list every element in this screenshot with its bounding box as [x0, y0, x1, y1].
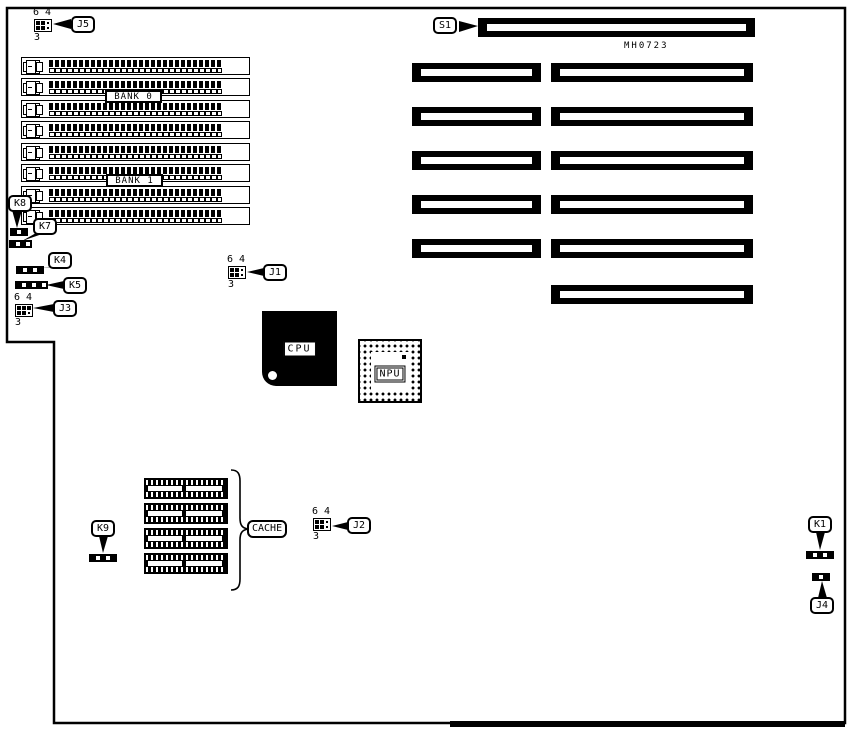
expansion-slot-long — [551, 285, 753, 304]
callout-k7: K7 — [33, 218, 57, 235]
connector-k7 — [9, 240, 32, 248]
callout-tail-s1 — [459, 21, 478, 32]
cpu-chip: CPU — [262, 311, 337, 386]
callout-k4: K4 — [48, 252, 72, 269]
s1-slot — [478, 18, 755, 37]
slot-opening — [421, 201, 532, 208]
callout-j3: J3 — [53, 300, 77, 317]
expansion-slot-short — [412, 151, 541, 170]
j2-pin4-label: 4 — [324, 507, 330, 517]
npu-label: NPU — [376, 368, 403, 381]
callout-s1-label: S1 — [439, 21, 451, 31]
callout-k1-label: K1 — [814, 520, 826, 530]
board-part-number: MH0723 — [624, 41, 669, 51]
j2-pin6-label: 6 — [312, 507, 318, 517]
callout-k9: K9 — [91, 520, 115, 537]
callout-tail-k5 — [46, 281, 64, 289]
callout-tail-k9 — [99, 536, 108, 553]
cache-label: CACHE — [247, 520, 287, 538]
callout-j4: J4 — [810, 597, 834, 614]
j1-pin6-label: 6 — [227, 255, 233, 265]
cache-label-text: CACHE — [252, 524, 282, 534]
expansion-slot-long — [551, 63, 753, 82]
cache-brace — [231, 470, 248, 590]
jumper-j2: 6 4 3 — [312, 507, 338, 545]
callout-s1: S1 — [433, 17, 457, 34]
connector-k5 — [15, 281, 48, 289]
callout-j5-label: J5 — [77, 20, 89, 30]
callout-k7-label: K7 — [39, 222, 51, 232]
bank0-text: BANK 0 — [114, 92, 153, 102]
j5-pin3-label: 3 — [34, 33, 40, 43]
callout-j1-label: J1 — [269, 268, 281, 278]
jumper-j1: 6 4 3 — [227, 255, 253, 293]
callout-k5: K5 — [63, 277, 87, 294]
slot-opening — [560, 201, 744, 208]
slot-opening — [560, 69, 744, 76]
bank1-text: BANK 1 — [115, 176, 154, 186]
j5-pin4-label: 4 — [45, 8, 51, 18]
jumper-j3: 6 4 3 — [14, 293, 40, 331]
npu-pin1-dot — [402, 355, 406, 359]
j2-pin-grid — [313, 518, 331, 531]
callout-j2-label: J2 — [353, 521, 365, 531]
simm-slot-7 — [21, 186, 250, 204]
expansion-slot-long — [551, 195, 753, 214]
connector-k9 — [89, 554, 117, 562]
connector-k8 — [10, 228, 28, 236]
callout-j1: J1 — [263, 264, 287, 281]
expansion-slot-short — [412, 63, 541, 82]
callout-k8: K8 — [8, 195, 32, 212]
cpu-pin1-dot — [268, 371, 277, 380]
expansion-slot-short — [412, 239, 541, 258]
slot-opening — [421, 113, 532, 120]
callout-tail-j4 — [818, 581, 827, 598]
expansion-slot-long — [551, 151, 753, 170]
callout-j4-label: J4 — [816, 601, 828, 611]
cache-chip-row — [144, 478, 228, 499]
cpu-label: CPU — [283, 341, 315, 356]
callout-k5-label: K5 — [69, 281, 81, 291]
bank0-label: BANK 0 — [105, 90, 162, 103]
expansion-slot-short — [412, 107, 541, 126]
slot-opening — [560, 157, 744, 164]
j1-pin4-label: 4 — [239, 255, 245, 265]
j5-pin6-label: 6 — [33, 8, 39, 18]
j3-pin4-label: 4 — [26, 293, 32, 303]
j1-pin3-label: 3 — [228, 280, 234, 290]
j3-pin3-label: 3 — [15, 318, 21, 328]
cache-chip-row — [144, 553, 228, 574]
callout-j3-label: J3 — [59, 304, 71, 314]
j3-pin-grid — [15, 304, 33, 317]
callout-k1: K1 — [808, 516, 832, 533]
cache-chip-row — [144, 528, 228, 549]
jumper-j5: 6 4 3 — [33, 8, 59, 46]
callout-tail-k1 — [816, 532, 825, 550]
bank1-label: BANK 1 — [106, 174, 163, 187]
slot-opening — [560, 113, 744, 120]
expansion-slot-long — [551, 107, 753, 126]
slot-opening — [560, 245, 744, 252]
s1-slot-opening — [487, 24, 746, 31]
slot-opening — [421, 69, 532, 76]
j1-pin-grid — [228, 266, 246, 279]
j5-pin-grid — [34, 19, 52, 32]
callout-k8-label: K8 — [14, 199, 26, 209]
slot-opening — [421, 157, 532, 164]
expansion-slot-short — [412, 195, 541, 214]
simm-slot-1 — [21, 57, 250, 75]
connector-k4 — [16, 266, 44, 274]
callout-j2: J2 — [347, 517, 371, 534]
connector-j4 — [812, 573, 830, 581]
connector-k1 — [806, 551, 834, 559]
simm-slot-4 — [21, 121, 250, 139]
j2-pin3-label: 3 — [313, 532, 319, 542]
expansion-slot-long — [551, 239, 753, 258]
callout-k4-label: K4 — [54, 256, 66, 266]
simm-slot-5 — [21, 143, 250, 161]
callout-k9-label: K9 — [97, 524, 109, 534]
slot-opening — [560, 291, 744, 298]
slot-opening — [421, 245, 532, 252]
motherboard-diagram: S1 MH0723 BANK 0 BANK 1 6 4 3 J5 6 4 3 — [0, 0, 852, 732]
npu-socket: NPU — [358, 339, 422, 403]
cache-chip-row — [144, 503, 228, 524]
callout-j5: J5 — [71, 16, 95, 33]
j3-pin6-label: 6 — [14, 293, 20, 303]
